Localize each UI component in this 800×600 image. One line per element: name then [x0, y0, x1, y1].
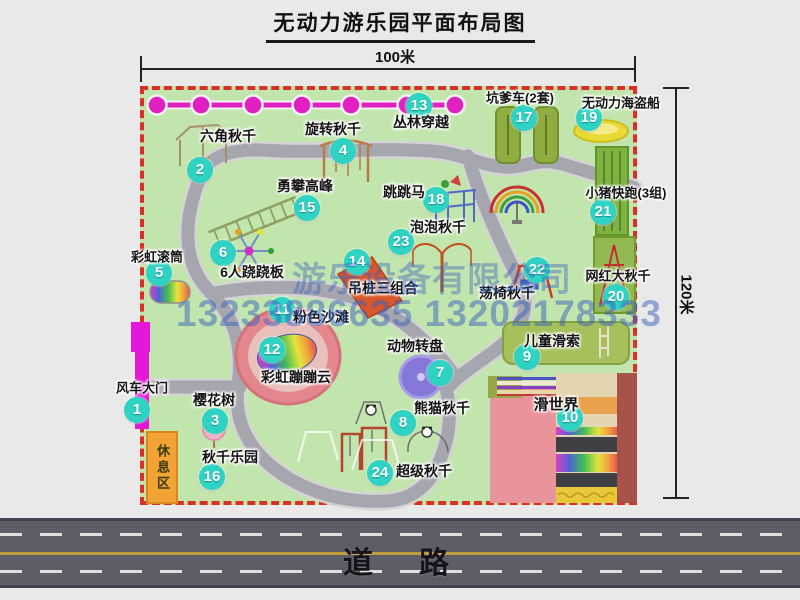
road-lane-line: [0, 533, 800, 536]
rest-area: 休息区: [146, 431, 178, 504]
road: 道 路: [0, 518, 800, 588]
dimension-line-top: [140, 68, 635, 70]
park-layout-poster: 休息区 1 风车大门 2 六角秋千 3 樱花树 4 旋转秋千 5 彩虹滚筒 6: [0, 0, 800, 600]
page-title-text: 无动力游乐园平面布局图: [266, 7, 535, 43]
dimension-tick: [663, 87, 689, 89]
dimension-width-label: 100米: [340, 46, 450, 67]
dimension-height-label: 120米: [677, 266, 698, 324]
road-label: 道 路: [0, 538, 800, 582]
dimension-tick: [663, 497, 689, 499]
dimension-tick: [140, 56, 142, 82]
dimension-tick: [634, 56, 636, 82]
page-title: 无动力游乐园平面布局图: [0, 7, 800, 43]
park-map-area: [140, 86, 637, 505]
